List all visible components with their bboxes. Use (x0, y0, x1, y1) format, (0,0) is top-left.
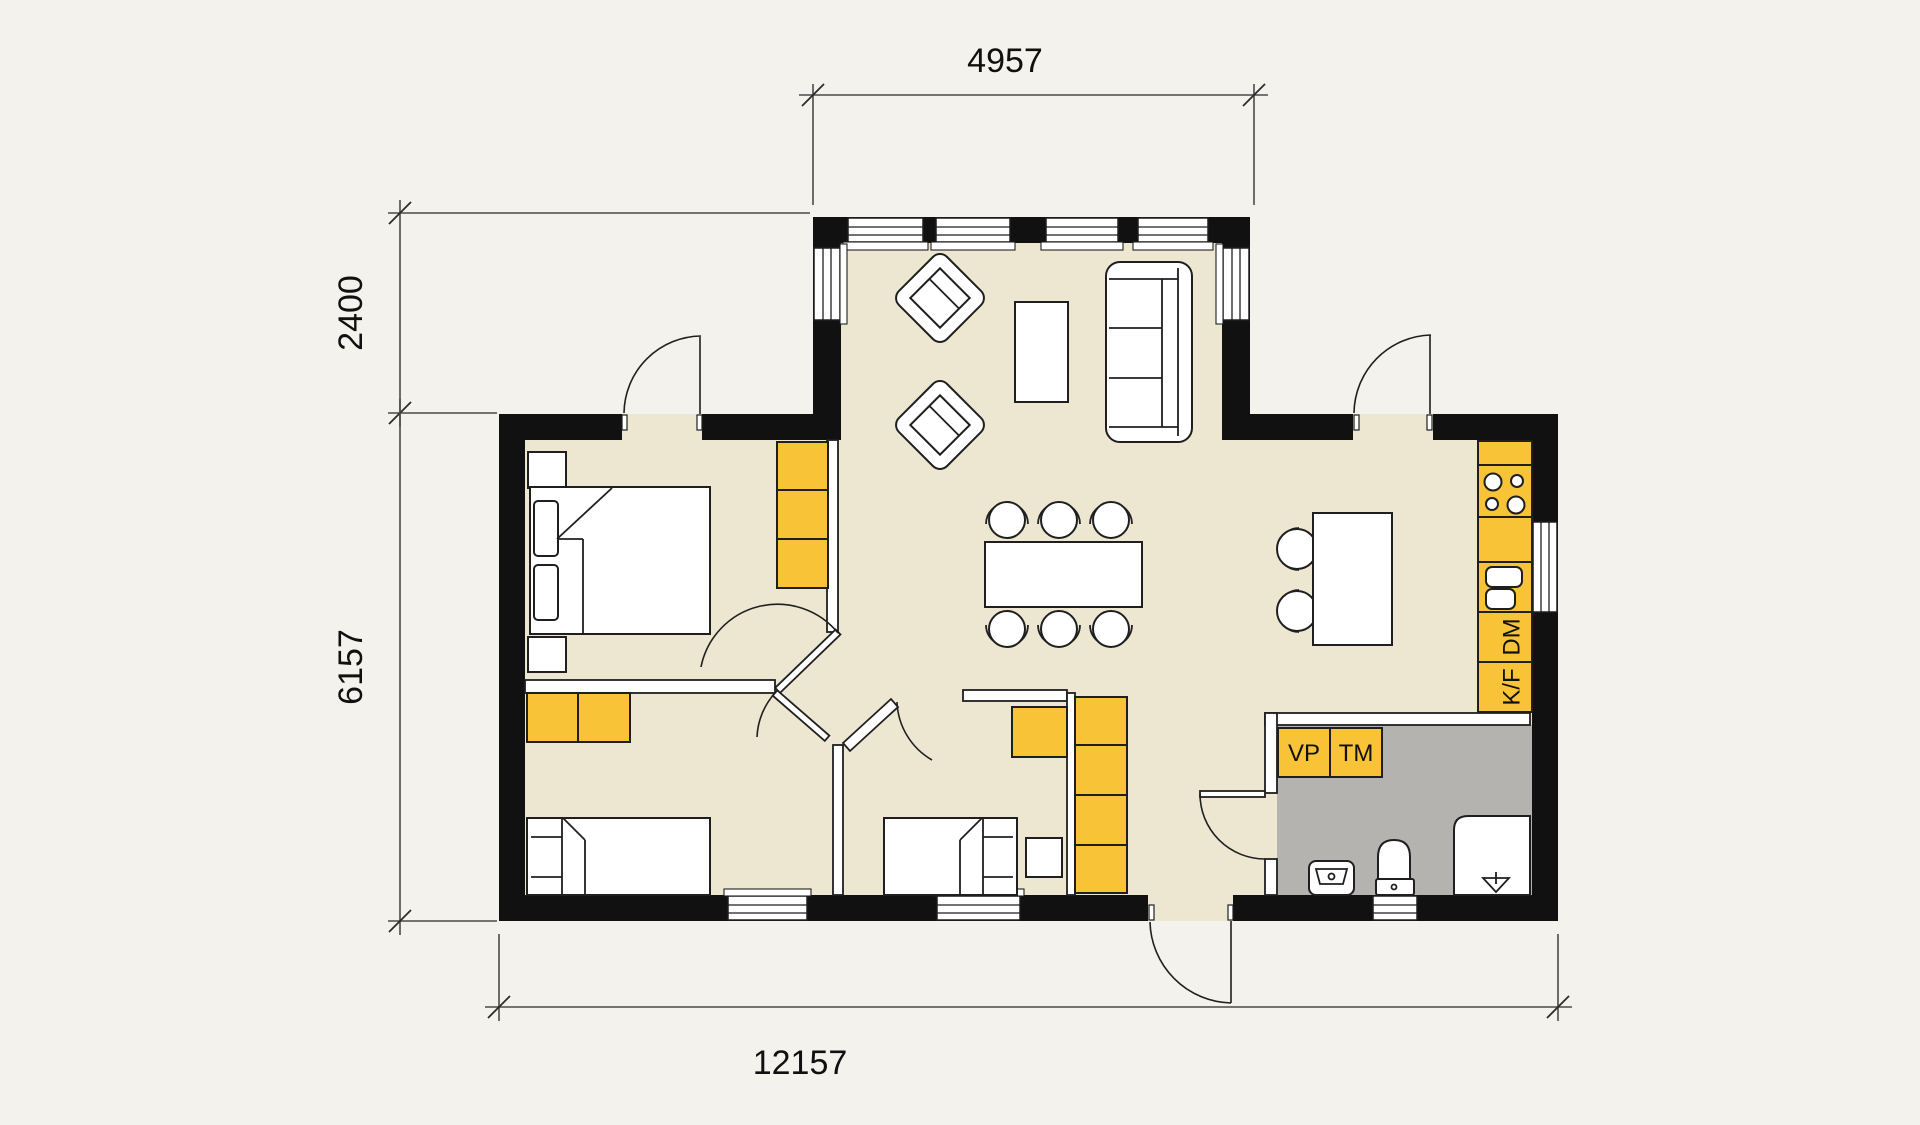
kitchen-sink (1478, 562, 1532, 612)
single-bed (884, 818, 1017, 895)
door-leaf-bathroom (1200, 791, 1265, 797)
door-jamb (1149, 905, 1154, 920)
kitchen-cabinet (1478, 441, 1532, 465)
opening-bedroom-door (622, 414, 702, 440)
opening-back-door (1148, 895, 1233, 921)
door-swing-bedroom-exterior (624, 336, 701, 413)
heat-pump: VP (1278, 728, 1330, 777)
door-jamb (1427, 415, 1432, 430)
wall-masterbed-bedroom3 (525, 680, 775, 693)
shower (1454, 816, 1530, 895)
stove (1478, 465, 1532, 517)
dimension-label-left-upper: 2400 (332, 275, 370, 351)
window-living-1 (843, 218, 928, 250)
fridge-freezer: K/F (1478, 662, 1532, 712)
dimension-label-left-lower: 6157 (332, 629, 370, 705)
kitchen-counter (1478, 517, 1532, 562)
nightstand (528, 452, 566, 488)
dresser-bedroom2 (1012, 707, 1067, 757)
heat-pump-label: VP (1288, 740, 1320, 767)
hall-wardrobe-column (1075, 697, 1127, 893)
floor-plan-canvas: DM K/F (0, 0, 1920, 1125)
window-living-4 (1133, 218, 1213, 250)
door-jamb (1354, 415, 1359, 430)
washbasin (1309, 861, 1354, 895)
wall-bedroom3-bedroom2 (833, 745, 843, 895)
dining-set (985, 502, 1142, 647)
toilet (1376, 840, 1414, 895)
wall-bedroom2-hall (1067, 693, 1075, 895)
dishwasher-label: DM (1498, 618, 1525, 655)
dimension-top-width: 4957 (799, 42, 1268, 205)
coffee-table (1015, 302, 1068, 402)
door-swing-entry (1354, 335, 1431, 413)
washing-machine-label: TM (1339, 740, 1374, 767)
nightstand (528, 637, 566, 672)
dimension-label-top: 4957 (967, 42, 1043, 80)
window-bathroom (1373, 896, 1417, 920)
kitchen-island (1313, 513, 1392, 645)
wall-bathroom-top (1265, 713, 1530, 725)
dishwasher: DM (1478, 612, 1532, 662)
window-living-2 (931, 218, 1015, 250)
window-living-left (814, 244, 847, 324)
wall-bathroom-left-lower (1265, 859, 1277, 895)
door-jamb (622, 415, 627, 430)
dimension-left-upper: 2400 (332, 200, 810, 427)
sofa (1106, 262, 1192, 442)
wall-bedroom2-top (963, 690, 1067, 701)
wardrobe-bedroom3 (527, 693, 630, 742)
dimension-left-lower: 6157 (332, 399, 497, 935)
door-jamb (1228, 905, 1233, 920)
door-swing-back (1150, 922, 1231, 1003)
window-bedroom3 (724, 889, 811, 920)
door-jamb (697, 415, 702, 430)
double-bed (530, 487, 710, 634)
bar-chair (1277, 590, 1317, 632)
wardrobe-master (777, 442, 828, 588)
wall-bathroom-left-upper (1265, 713, 1277, 793)
fridge-freezer-label: K/F (1498, 668, 1525, 705)
dining-table (985, 542, 1142, 607)
single-bed (527, 818, 710, 895)
window-living-right (1216, 244, 1249, 324)
washing-machine: TM (1330, 728, 1382, 777)
bar-chair (1277, 528, 1317, 570)
window-living-3 (1041, 218, 1123, 250)
opening-entry-door (1353, 414, 1433, 440)
dimension-label-bottom: 12157 (753, 1044, 848, 1082)
dimension-bottom-width: 12157 (485, 934, 1572, 1082)
nightstand (1026, 838, 1062, 877)
